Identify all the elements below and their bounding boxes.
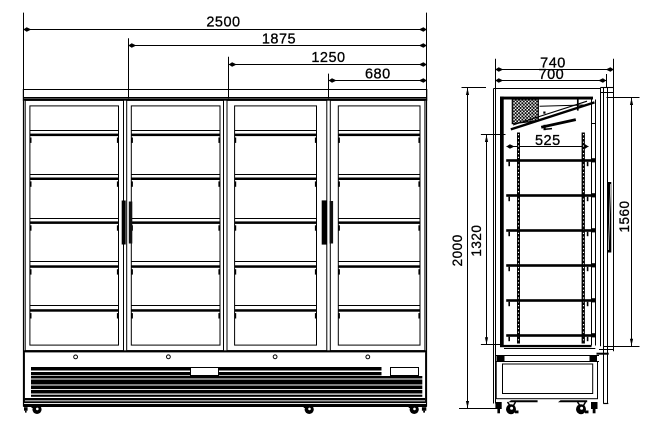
svg-text:2000: 2000 xyxy=(450,234,465,266)
svg-text:1560: 1560 xyxy=(617,200,632,232)
svg-text:680: 680 xyxy=(365,67,391,83)
svg-text:2500: 2500 xyxy=(206,15,240,31)
svg-text:1250: 1250 xyxy=(311,50,345,66)
svg-text:1320: 1320 xyxy=(469,225,484,257)
svg-text:1875: 1875 xyxy=(262,31,296,47)
svg-text:700: 700 xyxy=(539,67,565,83)
svg-text:525: 525 xyxy=(535,133,561,149)
